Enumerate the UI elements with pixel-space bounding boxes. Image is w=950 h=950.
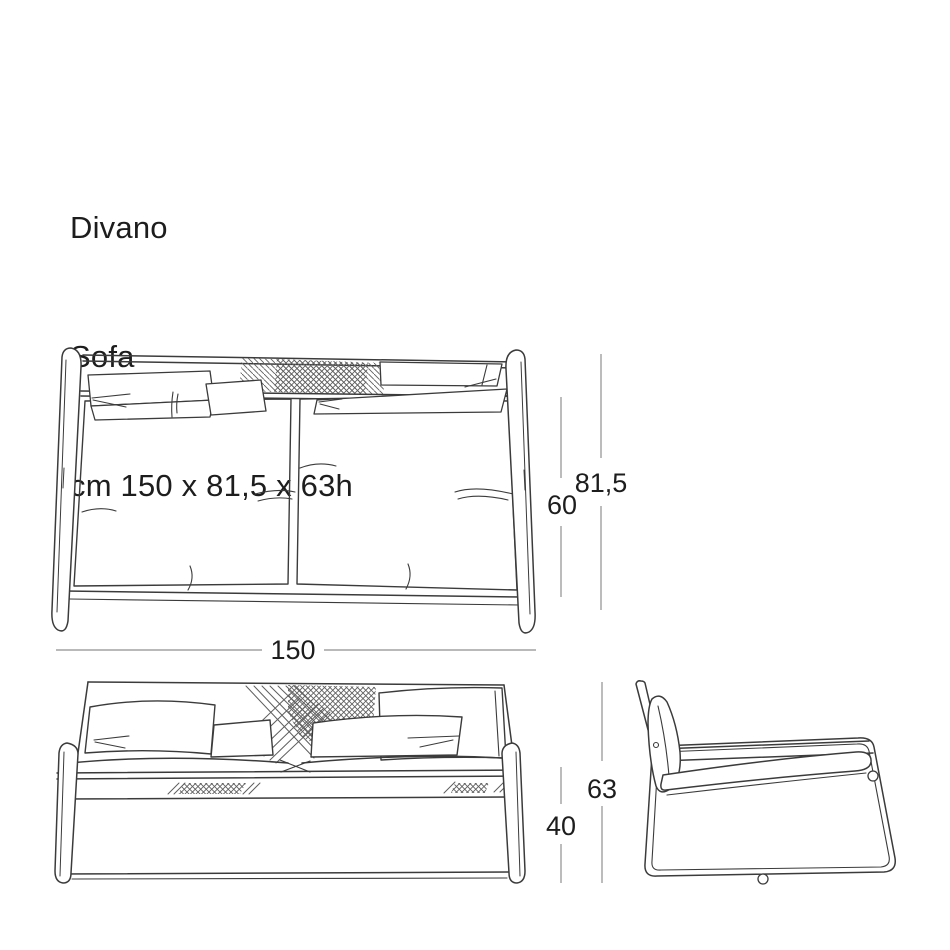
dimension-overall-width: 150: [56, 635, 536, 665]
dimension-seat-depth: 60: [547, 397, 577, 597]
dimension-overall-height: 63: [587, 682, 617, 883]
dimension-overall-depth: 81,5: [575, 354, 628, 610]
side-pivot-circle: [654, 743, 659, 748]
side-knob-circle: [868, 771, 878, 781]
dimension-label: 81,5: [575, 468, 628, 498]
front-lower-panel: [57, 798, 520, 879]
dimension-label: 60: [547, 490, 577, 520]
plan-seat-cushion-left: [74, 399, 295, 590]
front-leg-left: [55, 743, 78, 883]
front-frame-band: [57, 770, 520, 799]
front-pillow-right-front: [311, 715, 462, 757]
front-pillow-middle: [211, 720, 273, 757]
front-leg-right: [502, 743, 525, 883]
front-view: [55, 682, 525, 883]
side-view: [636, 681, 895, 884]
dimension-annotations: 150 60 81,5 63 40: [56, 354, 627, 883]
plan-seat-frame: [65, 394, 524, 605]
plan-armrest-left: [52, 348, 81, 631]
dimension-label: 63: [587, 774, 617, 804]
plan-view: [52, 348, 535, 633]
dimension-label: 40: [546, 811, 576, 841]
technical-drawing: 150 60 81,5 63 40: [0, 0, 950, 950]
side-seat-cushion: [661, 752, 871, 795]
plan-seat-cushion-right: [297, 396, 517, 590]
front-pillow-left: [85, 701, 215, 754]
plan-pillows-left: [88, 371, 266, 420]
sofa-spec-sheet: Divano Sofa cm 150 x 81,5 x 63h: [0, 0, 950, 950]
side-foot-circle: [758, 874, 768, 884]
dimension-label: 150: [270, 635, 315, 665]
dimension-seat-height: 40: [546, 767, 576, 883]
